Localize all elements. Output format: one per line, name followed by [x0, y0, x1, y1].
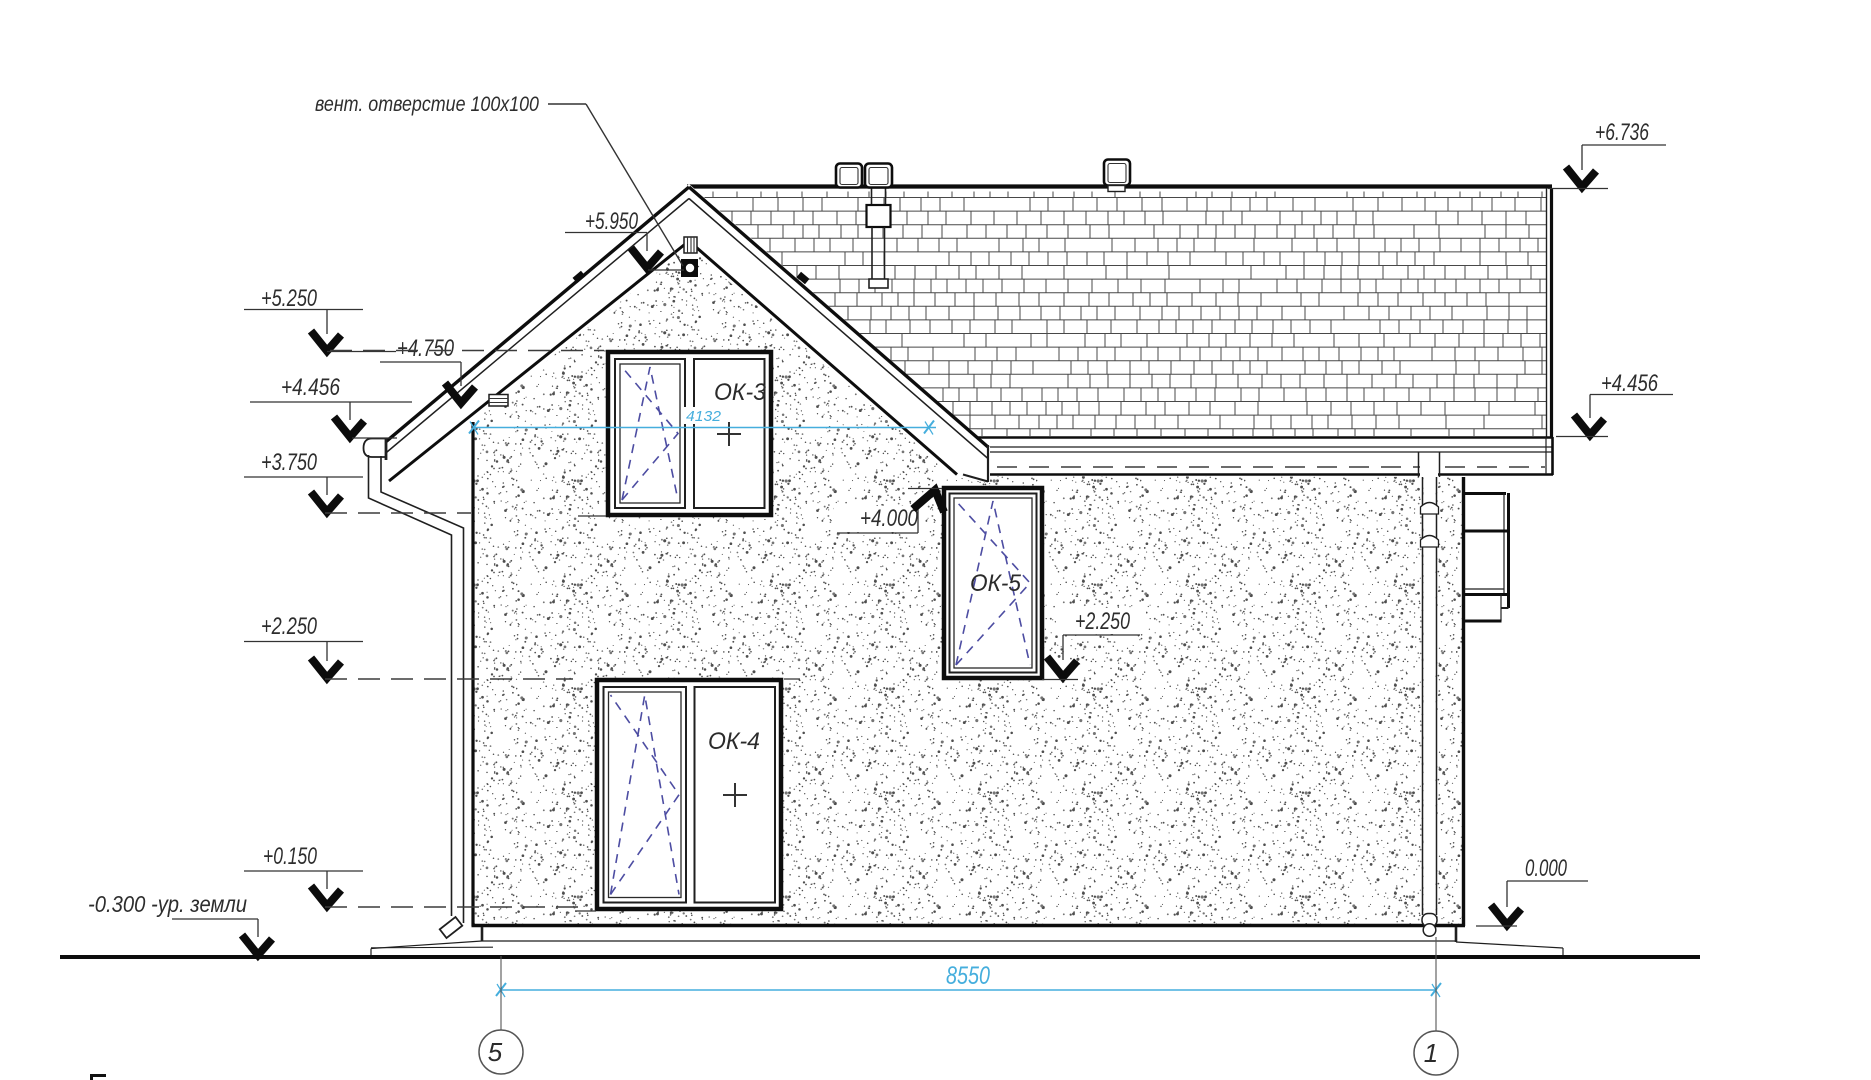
svg-text:+5.250: +5.250: [261, 285, 317, 312]
svg-text:+3.750: +3.750: [261, 449, 317, 476]
svg-text:8550: 8550: [946, 962, 990, 990]
svg-text:ОК-3: ОК-3: [714, 379, 766, 406]
svg-text:5: 5: [488, 1037, 503, 1067]
svg-text:+2.250: +2.250: [1075, 608, 1130, 635]
svg-text:ОК-4: ОК-4: [708, 728, 760, 755]
svg-text:+4.456: +4.456: [1601, 370, 1658, 397]
svg-text:4132: 4132: [686, 409, 721, 425]
svg-text:+2.250: +2.250: [261, 613, 317, 640]
svg-text:+6.736: +6.736: [1595, 119, 1649, 146]
svg-text:+4.750: +4.750: [397, 335, 454, 362]
svg-text:ОК-5: ОК-5: [970, 570, 1021, 597]
svg-text:+5.950: +5.950: [585, 208, 638, 235]
svg-text:-0.300 -ур. земли: -0.300 -ур. земли: [88, 891, 247, 917]
svg-text:+4.000: +4.000: [860, 505, 918, 532]
svg-text:0.000: 0.000: [1525, 855, 1567, 882]
svg-text:вент. отверстие 100x100: вент. отверстие 100x100: [315, 93, 539, 116]
svg-text:1: 1: [1424, 1038, 1438, 1068]
svg-text:+0.150: +0.150: [263, 843, 317, 870]
svg-text:+4.456: +4.456: [281, 374, 340, 401]
